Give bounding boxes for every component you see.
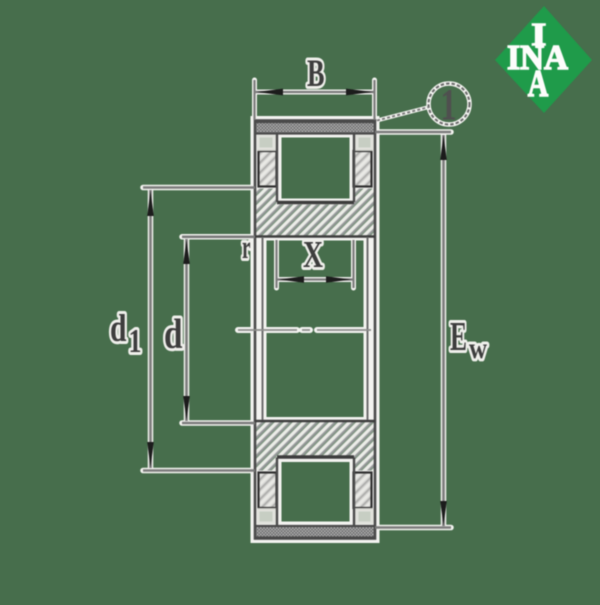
svg-text:1: 1: [129, 323, 142, 360]
svg-text:d: d: [164, 312, 183, 358]
svg-text:w: w: [469, 332, 487, 365]
svg-text:B: B: [307, 52, 325, 95]
svg-text:A: A: [528, 63, 549, 105]
svg-text:r: r: [242, 230, 251, 266]
svg-text:1: 1: [441, 80, 457, 129]
svg-text:d: d: [110, 307, 127, 350]
svg-text:X: X: [303, 234, 323, 276]
svg-text:E: E: [450, 313, 467, 359]
